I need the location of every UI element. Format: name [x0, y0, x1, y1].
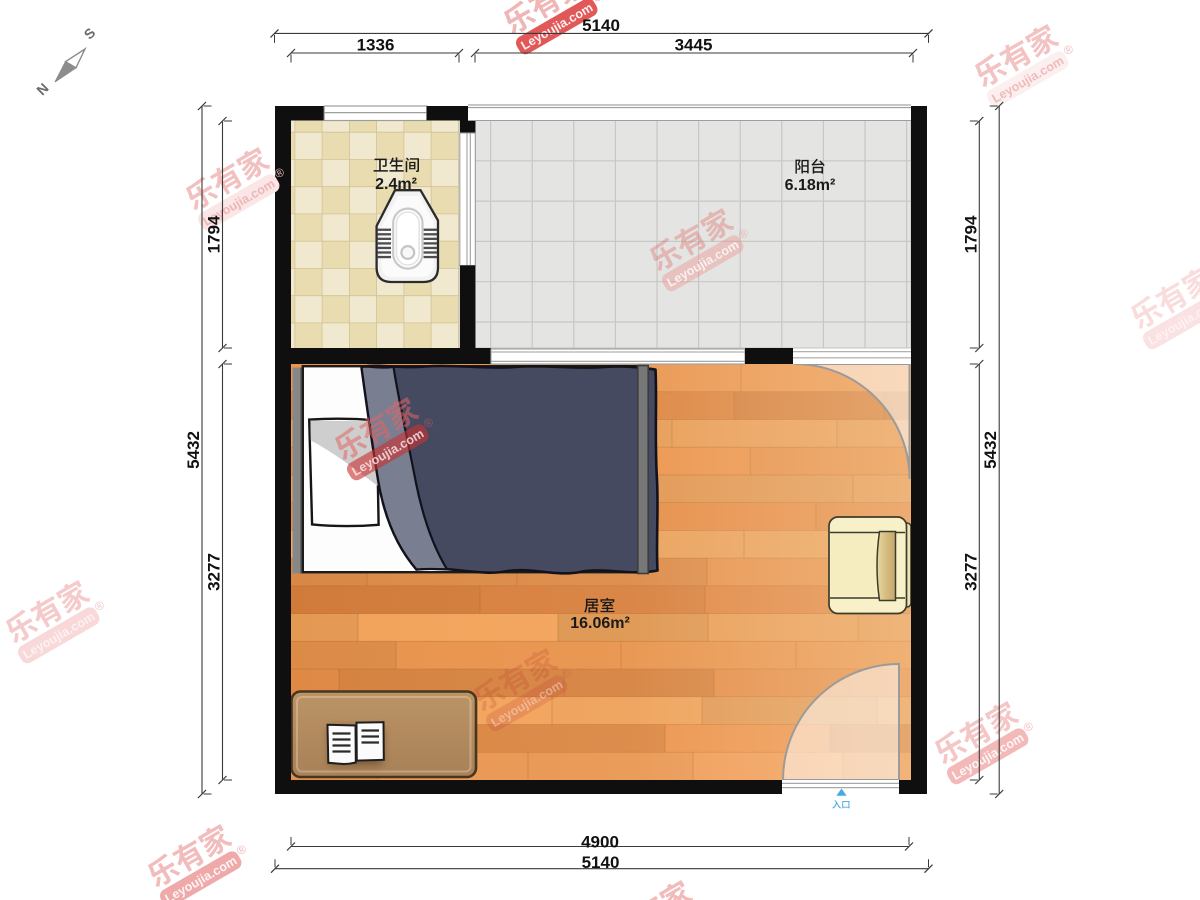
svg-text:5140: 5140	[582, 16, 620, 35]
svg-text:3277: 3277	[961, 553, 980, 591]
svg-text:5140: 5140	[582, 853, 620, 872]
svg-text:5432: 5432	[184, 431, 203, 469]
svg-text:3277: 3277	[205, 553, 224, 591]
svg-text:1794: 1794	[961, 215, 980, 253]
svg-text:6.18m²: 6.18m²	[785, 177, 836, 194]
svg-text:5432: 5432	[981, 431, 1000, 469]
svg-text:1794: 1794	[205, 215, 224, 253]
svg-text:2.4m²: 2.4m²	[375, 176, 417, 193]
svg-text:1336: 1336	[357, 36, 395, 55]
svg-text:3445: 3445	[675, 36, 713, 55]
svg-text:4900: 4900	[581, 833, 619, 852]
svg-text:16.06m²: 16.06m²	[570, 615, 630, 632]
